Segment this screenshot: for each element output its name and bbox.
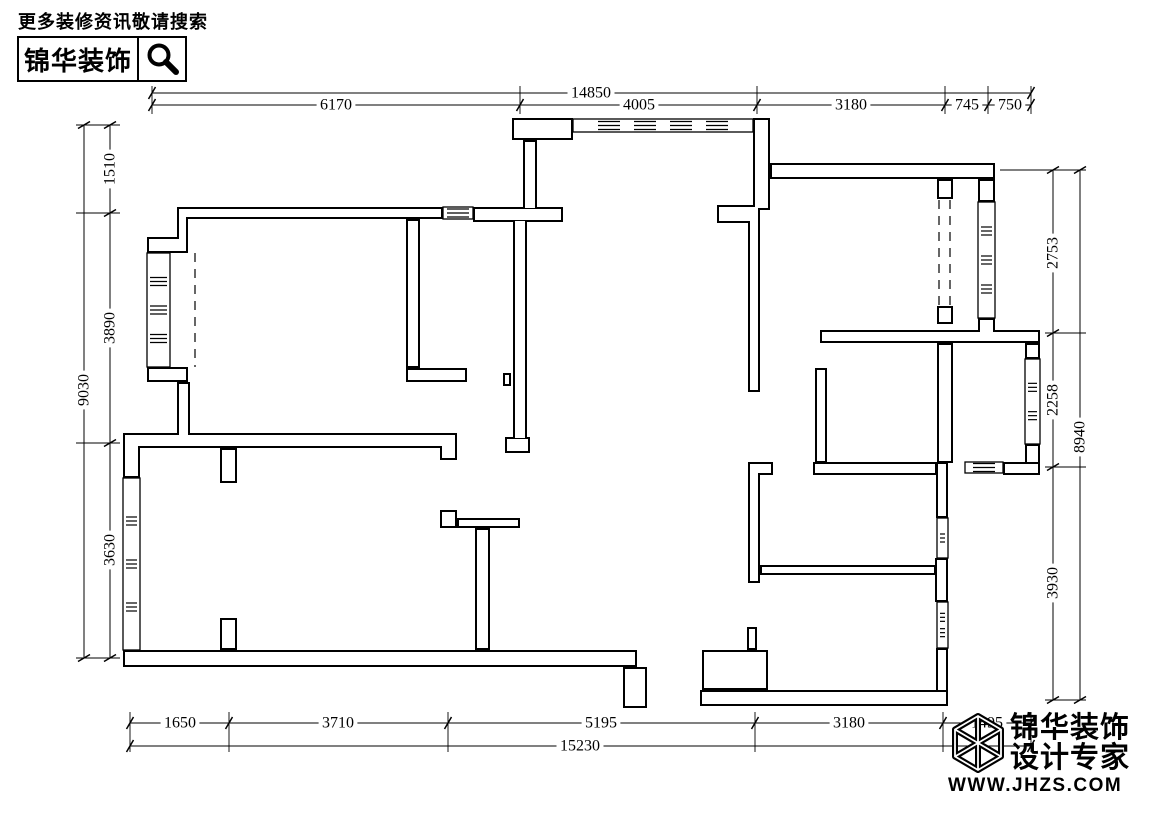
wall-core <box>149 369 186 380</box>
wall-core <box>507 439 528 451</box>
wall-core <box>125 435 138 476</box>
wall-core <box>442 512 455 526</box>
dimension-text: 3930 <box>1045 567 1062 599</box>
promo-text: 更多装修资讯敬请搜索 <box>18 8 208 34</box>
window-band <box>1025 359 1040 444</box>
dimension-label: 3180 <box>832 97 871 114</box>
watermark-url: WWW.JHZS.COM <box>948 775 1148 797</box>
brand-name: 锦华装饰 <box>19 38 137 80</box>
dimension-label: 5195 <box>582 715 621 732</box>
wall-core <box>938 650 946 690</box>
dimension-label: 3930 <box>1045 564 1062 603</box>
wall-core <box>980 181 993 200</box>
wall-core <box>222 620 235 648</box>
dimension-text: 3890 <box>102 312 119 344</box>
wall-core <box>408 370 465 380</box>
dimension-text: 4005 <box>623 97 655 114</box>
dimension-text: 3180 <box>833 715 865 732</box>
wall-core <box>750 464 758 581</box>
wall-core <box>817 370 825 461</box>
dimension-label: 6170 <box>317 97 356 114</box>
dimension-text: 1510 <box>102 153 119 185</box>
dimension-label: 9030 <box>76 371 93 410</box>
wall-core <box>1027 446 1038 462</box>
wall-core <box>704 652 766 688</box>
wall-core <box>442 435 455 458</box>
dimension-text: 750 <box>998 97 1022 114</box>
brand-box: 锦华装饰 <box>17 36 187 82</box>
dimension-text: 6170 <box>320 97 352 114</box>
dimension-label: 4005 <box>620 97 659 114</box>
dimension-text: 8940 <box>1072 421 1089 453</box>
wall-core <box>938 464 946 516</box>
wall-core <box>125 652 635 665</box>
watermark: 锦华装饰 设计专家 WWW.JHZS.COM <box>948 712 1148 797</box>
wall-core <box>125 435 455 446</box>
wall-core <box>528 199 532 206</box>
dimension-text: 3630 <box>102 534 119 566</box>
wall-core <box>525 142 535 208</box>
page-root: 1485061704005318074575016503710519531801… <box>0 0 1158 822</box>
wall-core <box>1005 464 1038 473</box>
dimension-text: 2753 <box>1045 237 1062 269</box>
wall-core <box>815 464 935 473</box>
search-cell <box>137 38 185 80</box>
wall-core <box>939 181 951 197</box>
dimension-text: 15230 <box>560 738 600 755</box>
wall-core <box>184 209 441 217</box>
wall-core <box>1027 345 1038 357</box>
dimension-label: 3890 <box>102 309 119 348</box>
wall-core <box>625 669 645 706</box>
wall-core <box>755 120 768 208</box>
dimension-text: 14850 <box>571 85 611 102</box>
wall-core <box>505 375 509 384</box>
wall-core <box>762 567 934 573</box>
dimension-label: 2258 <box>1045 381 1062 420</box>
wall-core <box>822 332 1038 341</box>
wall-core <box>749 629 755 648</box>
wall-core <box>477 530 488 648</box>
dimension-text: 745 <box>955 97 979 114</box>
dimension-text: 5195 <box>585 715 617 732</box>
wall-core <box>475 209 561 220</box>
cube-logo-icon <box>948 712 1008 774</box>
wall-core <box>939 345 951 461</box>
wall-core <box>937 560 946 600</box>
dimension-text: 3710 <box>322 715 354 732</box>
walls-outline-layer <box>123 118 1040 708</box>
search-icon <box>143 40 181 78</box>
dimension-label: 750 <box>995 97 1026 114</box>
dimension-label: 2753 <box>1045 234 1062 273</box>
dimension-label: 3630 <box>102 531 119 570</box>
floorplan-drawing: 1485061704005318074575016503710519531801… <box>0 0 1158 822</box>
wall-core <box>719 207 758 221</box>
window-band <box>937 602 948 648</box>
wall-core <box>702 692 946 704</box>
wall-core <box>939 308 951 322</box>
wall-core <box>514 120 571 138</box>
dimension-label: 1650 <box>161 715 200 732</box>
dimension-label: 745 <box>952 97 983 114</box>
dimension-text: 2258 <box>1045 384 1062 416</box>
dimension-text: 3180 <box>835 97 867 114</box>
wall-core <box>179 384 188 436</box>
watermark-tagline: 设计专家 <box>1010 743 1130 773</box>
dimension-label: 3710 <box>319 715 358 732</box>
wall-core <box>222 450 235 481</box>
dimension-label: 14850 <box>568 85 615 102</box>
wall-core <box>408 221 418 366</box>
wall-core <box>750 207 758 390</box>
wall-core <box>459 520 518 526</box>
dimension-label: 3180 <box>830 715 869 732</box>
dimension-label: 15230 <box>557 738 604 755</box>
dimension-label: 1510 <box>102 150 119 189</box>
watermark-brand: 锦华装饰 <box>1010 713 1130 743</box>
wall-core <box>772 165 993 177</box>
dimension-text: 1650 <box>164 715 196 732</box>
dimension-label: 8940 <box>1072 418 1089 457</box>
wall-core <box>149 239 186 251</box>
dimension-text: 9030 <box>76 374 93 406</box>
wall-core <box>515 221 525 438</box>
